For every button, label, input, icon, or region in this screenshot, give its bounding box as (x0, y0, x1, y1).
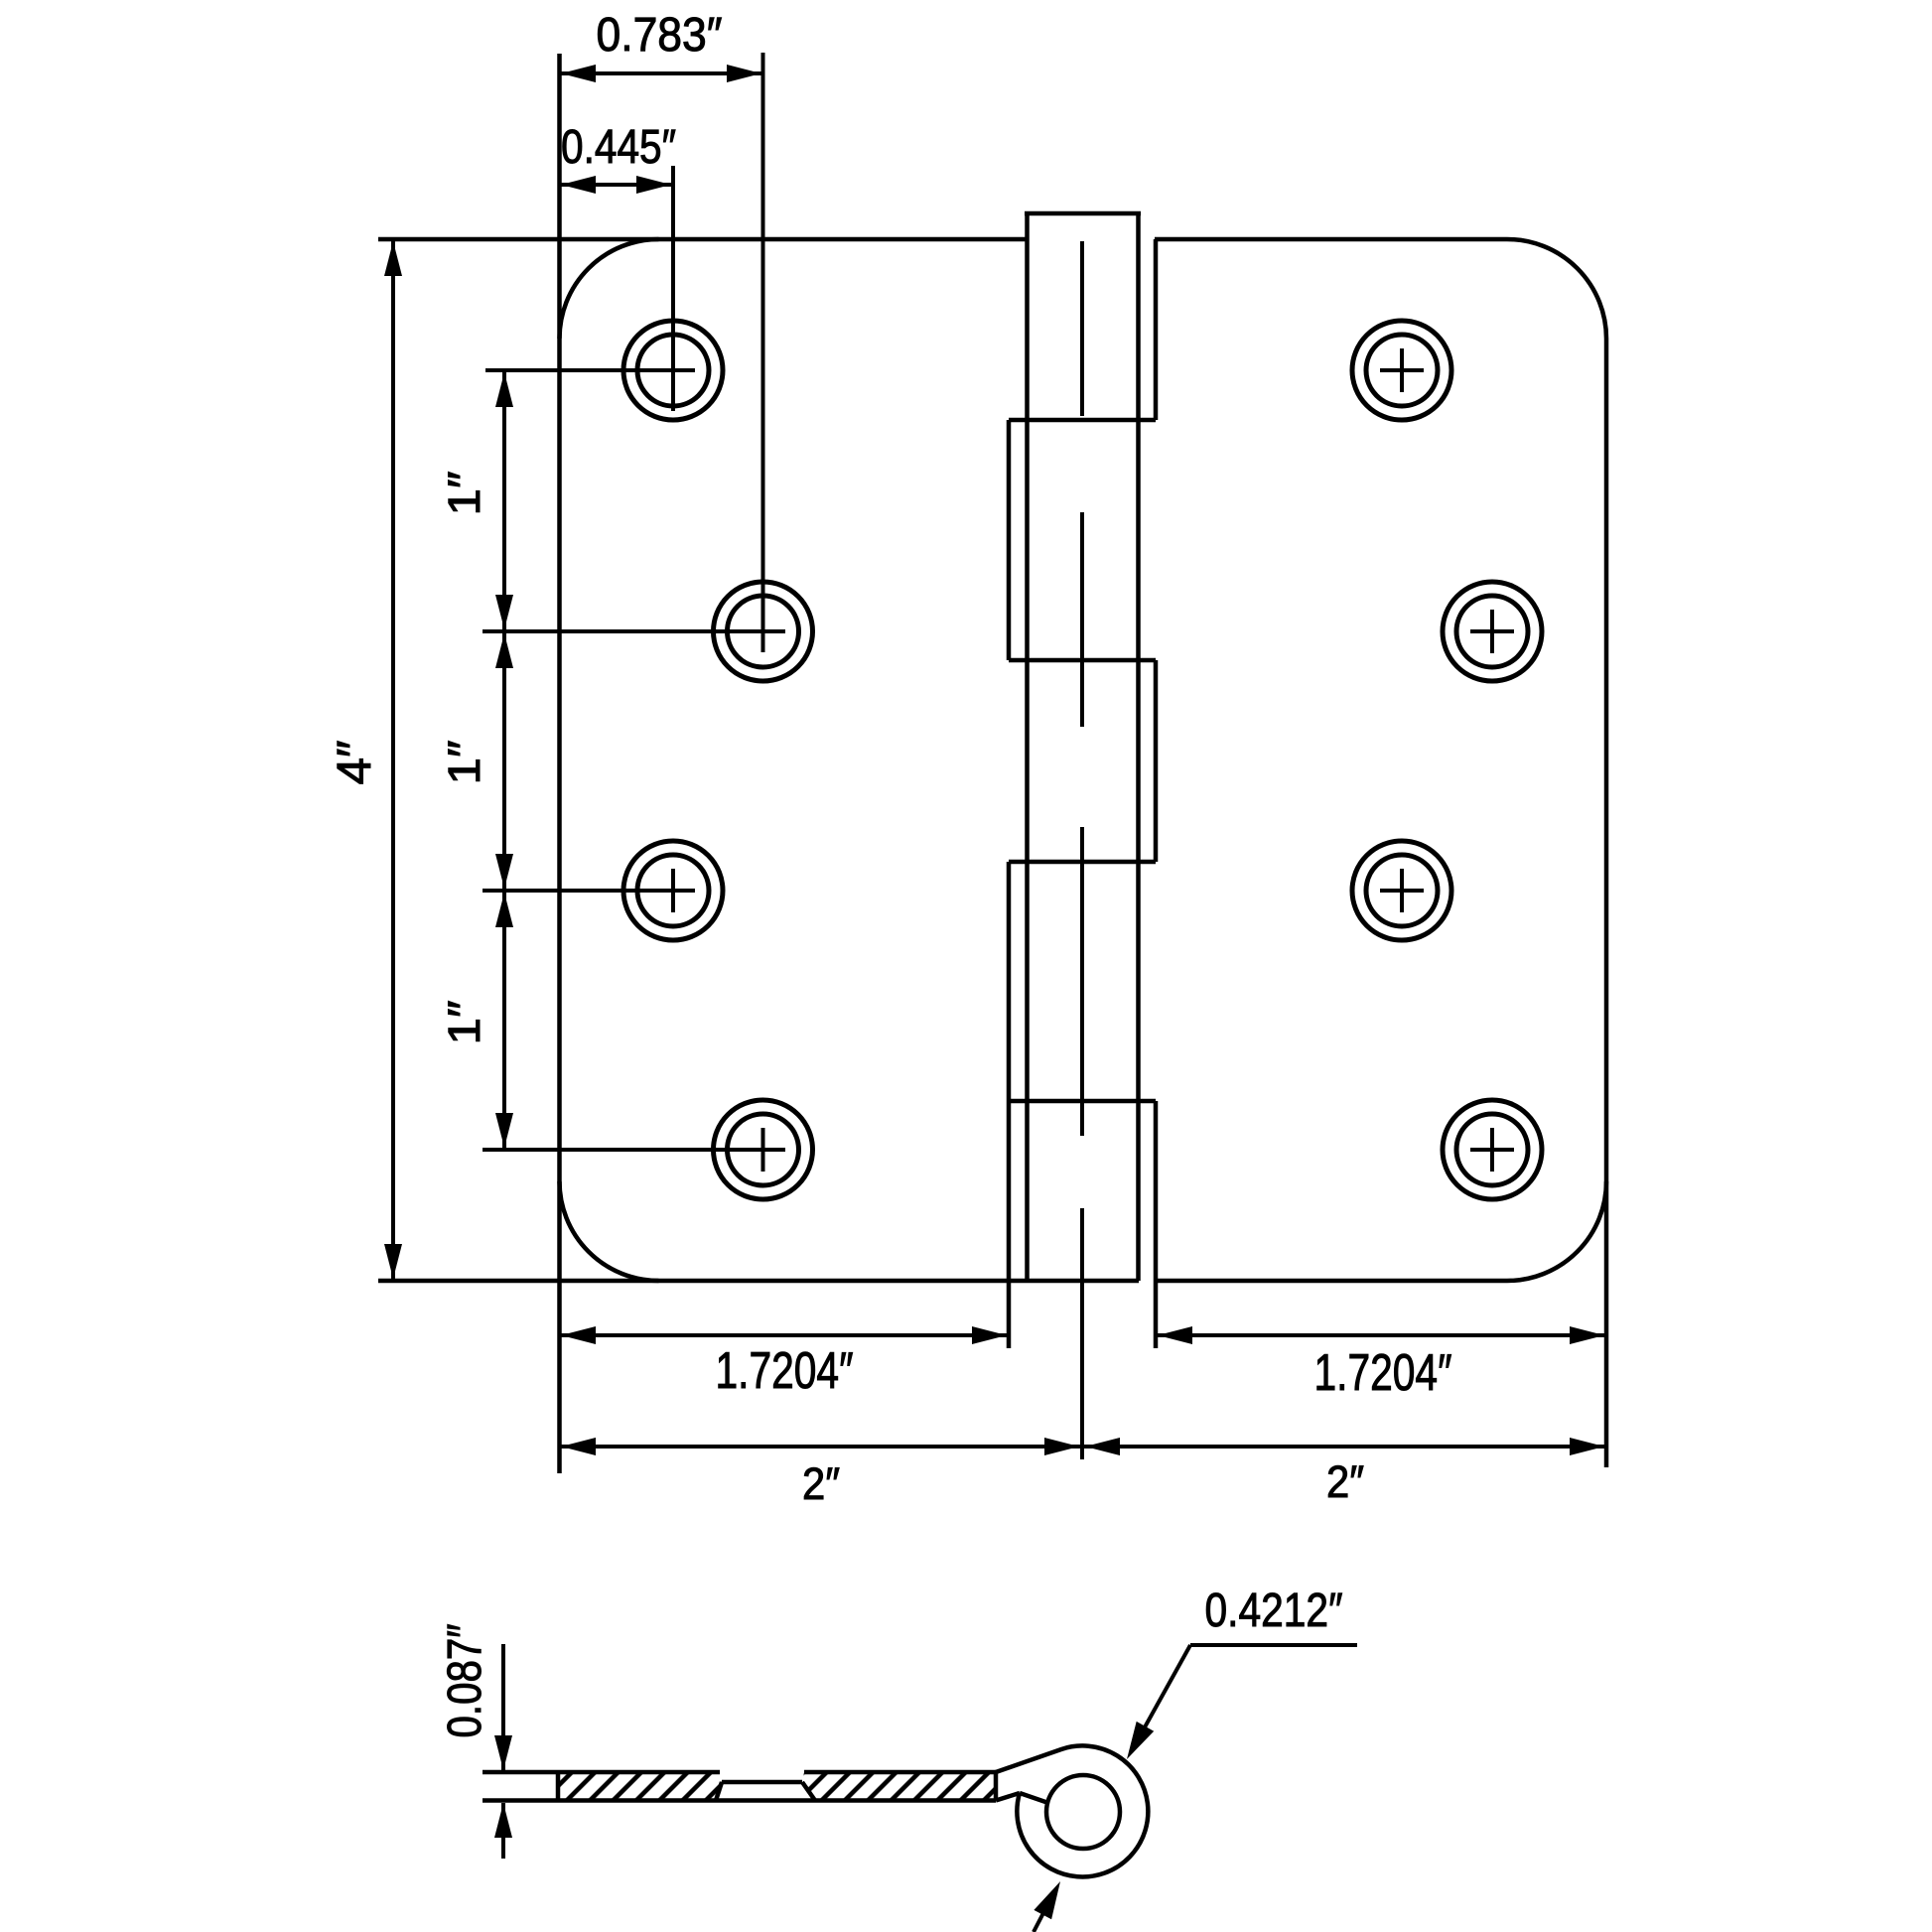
svg-text:2″: 2″ (1326, 1456, 1364, 1507)
svg-text:1″: 1″ (439, 1000, 489, 1044)
svg-text:0.087″: 0.087″ (439, 1623, 491, 1737)
svg-text:1.7204″: 1.7204″ (1314, 1344, 1452, 1402)
svg-text:1″: 1″ (439, 740, 489, 784)
svg-text:1.7204″: 1.7204″ (716, 1342, 854, 1400)
svg-text:4″: 4″ (329, 740, 381, 784)
svg-text:2″: 2″ (802, 1458, 840, 1509)
svg-text:0.4212″: 0.4212″ (1205, 1585, 1343, 1637)
svg-text:0.783″: 0.783″ (597, 9, 723, 62)
svg-text:1″: 1″ (439, 471, 489, 515)
svg-text:0.445″: 0.445″ (561, 121, 676, 174)
